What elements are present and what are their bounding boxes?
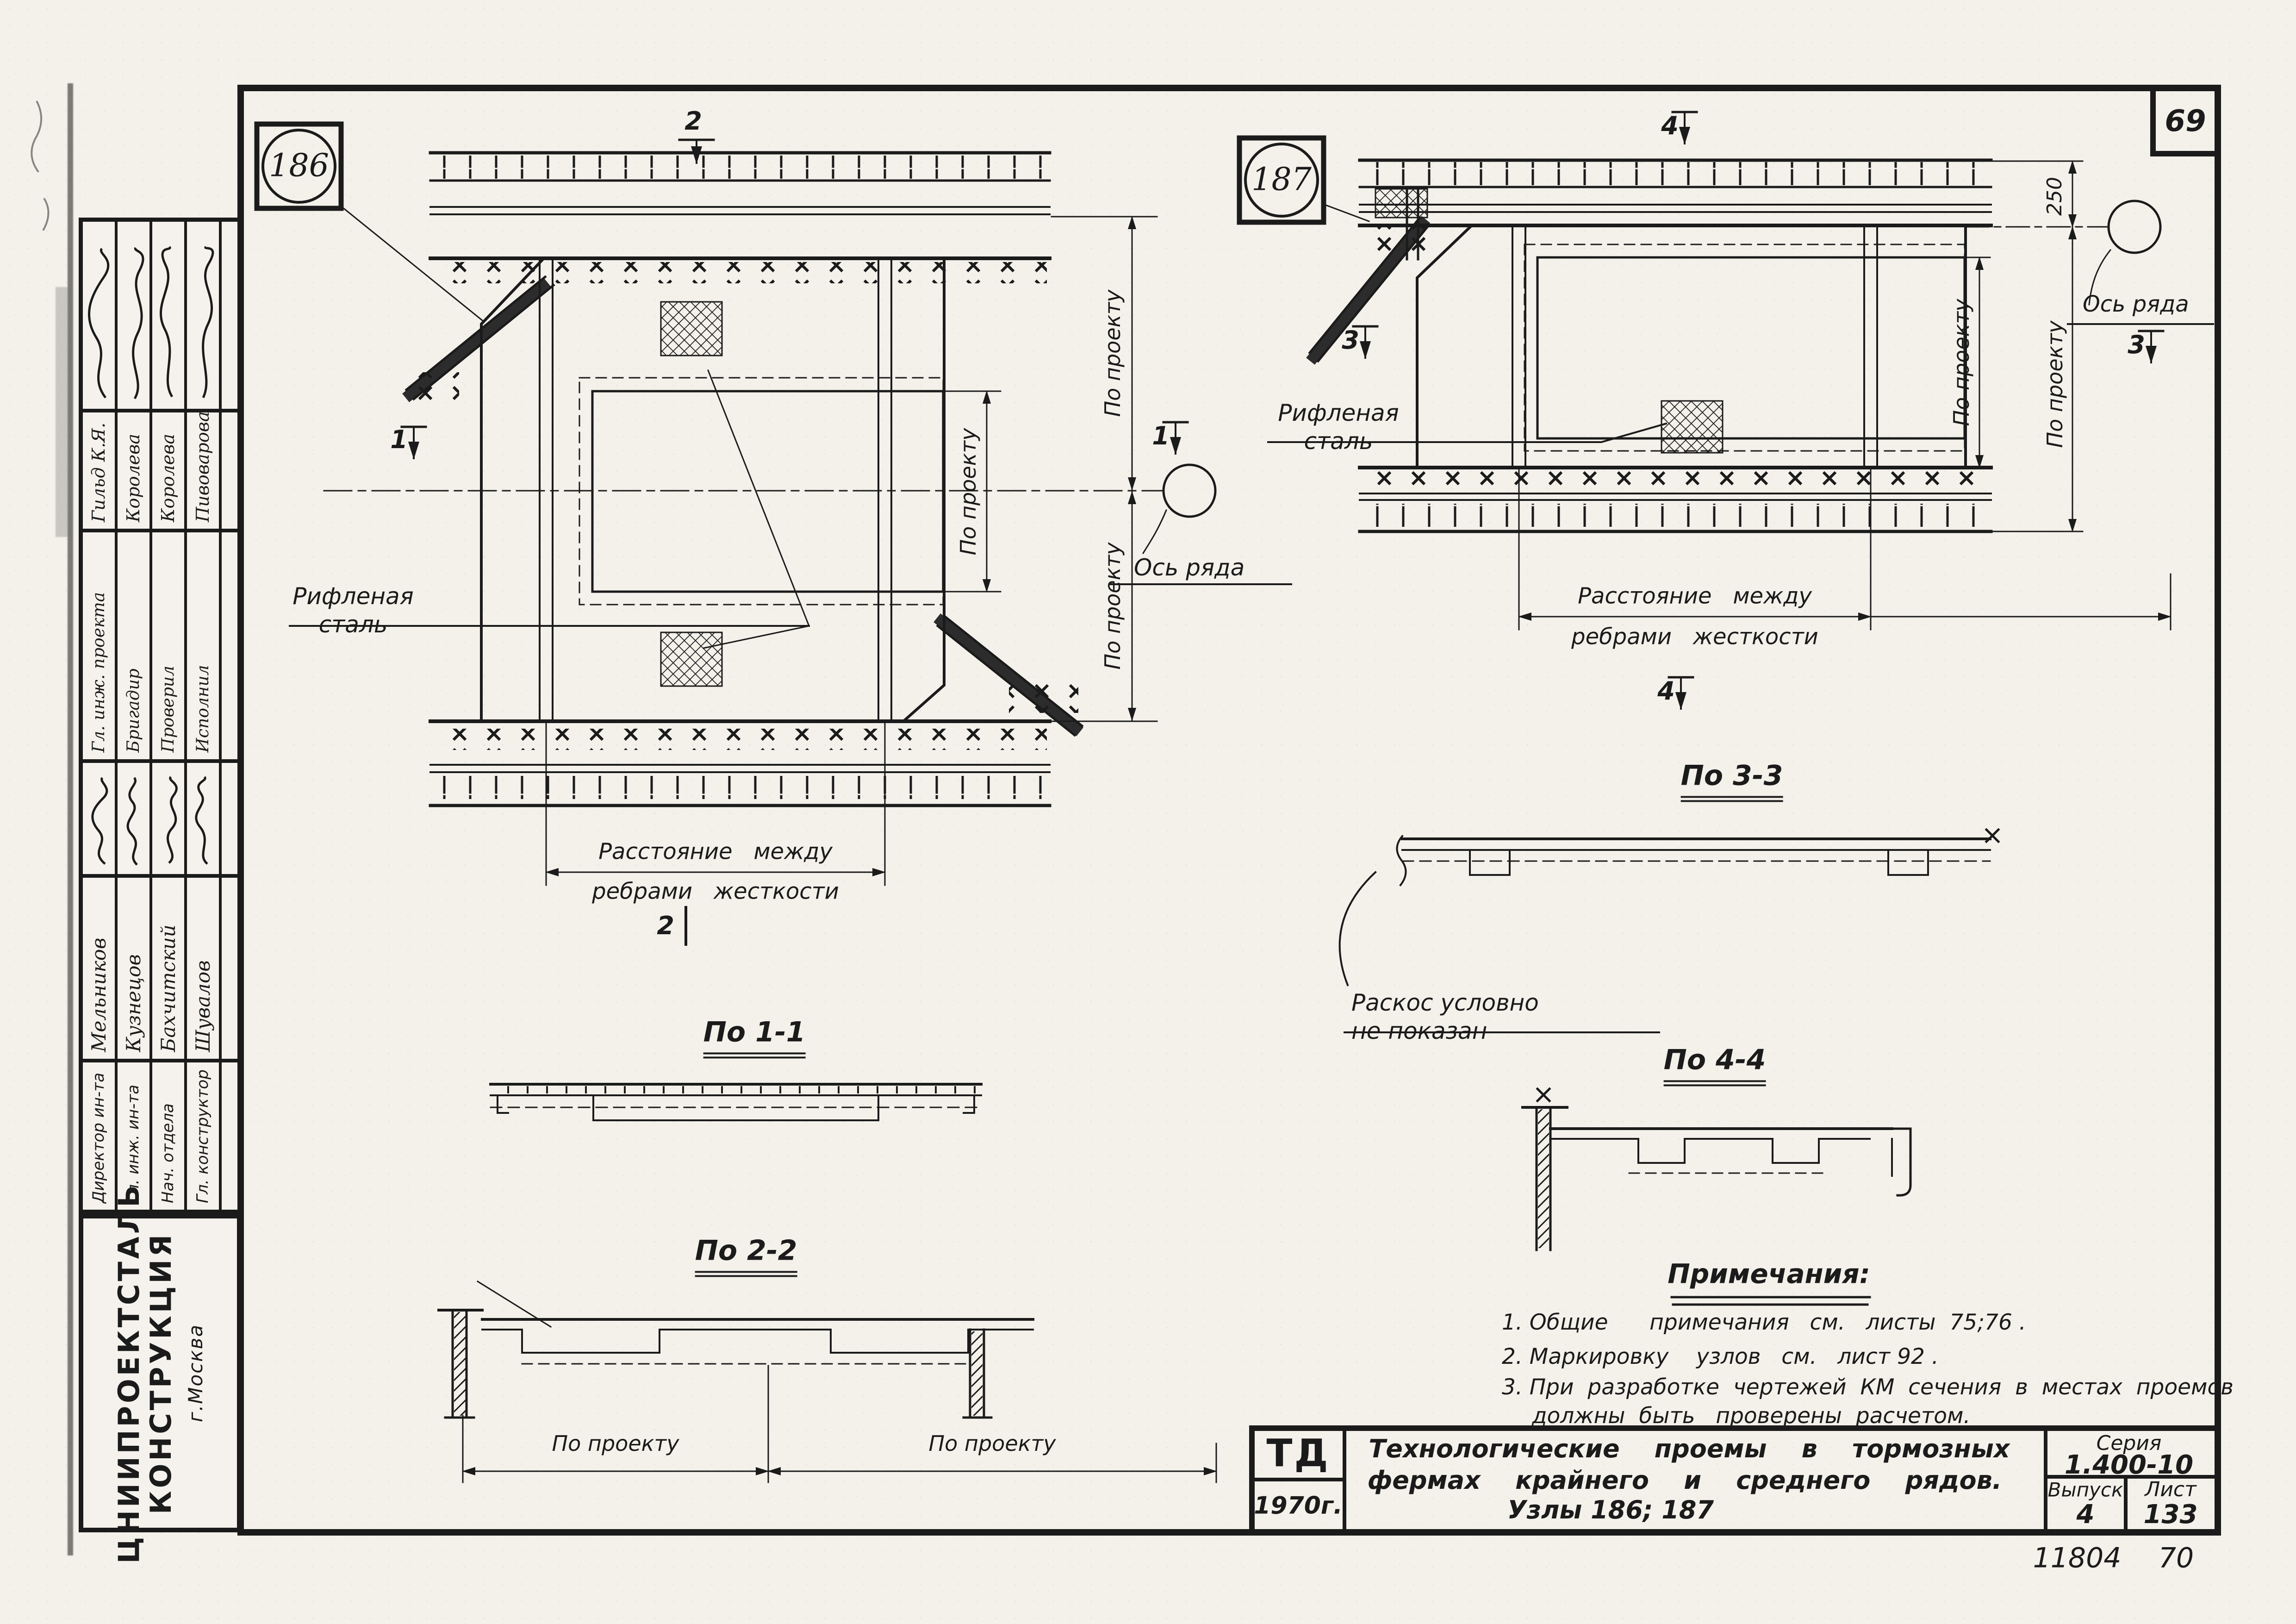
- notes-title: Примечания:: [1668, 1258, 1870, 1291]
- dim-by-project-right-inner: По проекту: [1948, 299, 1974, 426]
- notes-item-3b: должны быть проверены расчетом.: [1532, 1403, 1970, 1429]
- notes-item-1: 1. Общие примечания см. листы 75;76 .: [1502, 1309, 2026, 1336]
- archive-number: 11804: [2033, 1541, 2122, 1575]
- stamp-design-roles: Гл. инж. проекта Бригадир Проверил Испол…: [83, 532, 237, 763]
- brace-note-label: Раскос условно не показан: [1351, 989, 1629, 1045]
- cut-mark-4-bottom: 4: [1657, 676, 1675, 706]
- stamp-management-signatures: [83, 763, 237, 878]
- institute-city: г.Москва: [184, 1324, 207, 1422]
- section-title-2-2: По 2-2: [695, 1234, 797, 1277]
- stamp-design-names: Гильд К.Я. Королева Королева Пивоварова: [83, 412, 237, 532]
- node-number-187: 187: [1251, 161, 1312, 200]
- title-block-issue-value: 4: [2077, 1499, 2095, 1530]
- section-title-4-4: По 4-4: [1664, 1043, 1766, 1086]
- rib-distance-left-line2: ребрами жесткости: [592, 878, 839, 906]
- stamp-name: Бахчитский: [152, 878, 187, 1058]
- institute-name-box: ЦНИИПРОЕКТСТАЛЬ КОНСТРУКЦИЯ г.Москва: [79, 1214, 242, 1532]
- stamp-name: Гильд К.Я.: [83, 412, 118, 529]
- stamp-empty-cell: [222, 412, 242, 529]
- cut-mark-3-right: 3: [2128, 330, 2145, 360]
- riffled-steel-label-right: Рифленая сталь: [1269, 399, 1408, 456]
- stamp-role: Нач. отдела: [152, 1062, 187, 1210]
- section-title-1-1: По 1-1: [703, 1015, 806, 1058]
- dim-by-project-right-outer: По проекту: [2042, 321, 2068, 448]
- rib-distance-right-line1: Расстояние между: [1578, 583, 1812, 610]
- row-axis-label-right: Ось ряда: [2083, 291, 2189, 318]
- notes-item-2: 2. Маркировку узлов см. лист 92 .: [1502, 1343, 1939, 1370]
- dim-by-project-left-upper: По проекту: [1100, 290, 1126, 417]
- notes-item-3: 3. При разработке чертежей КМ сечения в …: [1502, 1374, 2234, 1400]
- stamp-empty-cell: [222, 1062, 242, 1210]
- stamp-design-signatures: [83, 222, 237, 412]
- dim-250: 250: [2042, 177, 2067, 216]
- stamp-name: Мельников: [83, 878, 118, 1058]
- stamp-name: Королева: [152, 412, 187, 529]
- dim-by-project-left-lower: По проекту: [1100, 543, 1126, 670]
- stamp-role: Гл. конструктор: [187, 1062, 222, 1210]
- signature-scribble-icon: [118, 222, 152, 409]
- cut-mark-1-left: 1: [390, 425, 408, 455]
- title-block-org-mark: ТД: [1267, 1430, 1330, 1477]
- archive-year: 70: [2159, 1541, 2194, 1575]
- cut-mark-4-top: 4: [1661, 111, 1679, 141]
- stamp-management-roles: Директор ин-та Гл. инж. ин-та Нач. отдел…: [83, 1062, 237, 1210]
- section-title-3-3: По 3-3: [1681, 759, 1783, 802]
- rib-distance-left-line1: Расстояние между: [598, 838, 833, 866]
- stamp-empty-cell: [222, 878, 242, 1058]
- stamp-management-names: Мельников Кузнецов Бахчитский Шувалов: [83, 878, 237, 1062]
- institute-name-line2: КОНСТРУКЦИЯ: [145, 1232, 177, 1514]
- title-block-line3: Узлы 186; 187: [1507, 1495, 1714, 1525]
- title-block-series-value: 1.400-10: [2065, 1449, 2193, 1481]
- stamp-empty-cell: [222, 532, 242, 759]
- signature-scribble-icon: [152, 222, 187, 409]
- cut-mark-2-top: 2: [684, 106, 702, 137]
- riffled-steel-label-left: Рифленая сталь: [286, 582, 420, 639]
- title-block-sheet-value: 133: [2144, 1499, 2198, 1530]
- node-number-186: 186: [269, 147, 329, 186]
- cut-mark-3-left: 3: [1342, 325, 1359, 356]
- signature-scribble-icon: [187, 222, 222, 409]
- stamp-signature-table: Директор ин-та Гл. инж. ин-та Нач. отдел…: [79, 218, 242, 1214]
- stamp-name: Шувалов: [187, 878, 222, 1058]
- title-block-line2: фермах крайнего и среднего рядов.: [1368, 1465, 2002, 1496]
- stamp-role: Гл. инж. проекта: [83, 532, 118, 759]
- dim-by-project-left-inner: По проекту: [955, 428, 981, 556]
- stamp-name: Пивоварова: [187, 412, 222, 529]
- stamp-name: Кузнецов: [118, 878, 152, 1058]
- signature-scribble-icon: [118, 763, 152, 874]
- signature-scribble-icon: [83, 763, 118, 874]
- title-block-sheet-label: Лист: [2145, 1477, 2196, 1502]
- drawing-sheet: 69 11804 70 186 187 2 2 1 1 3 3 4 4 По 1…: [0, 0, 2296, 1624]
- sheet-corner-number: 69: [2165, 103, 2206, 139]
- dim-by-project-sec22-left: По проекту: [552, 1430, 679, 1456]
- stamp-role: Исполнил: [187, 532, 222, 759]
- row-axis-label-left: Ось ряда: [1134, 554, 1244, 582]
- stamp-role: Проверил: [152, 532, 187, 759]
- title-block-issue-label: Выпуск: [2048, 1478, 2123, 1501]
- signature-scribble-icon: [187, 763, 222, 874]
- institute-name-line1: ЦНИИПРОЕКТСТАЛЬ: [113, 1182, 145, 1563]
- rib-distance-right-line2: ребрами жесткости: [1571, 624, 1818, 651]
- cut-mark-2-bottom: 2: [657, 911, 674, 941]
- stamp-role: Бригадир: [118, 532, 152, 759]
- title-block-line1: Технологические проемы в тормозных: [1369, 1434, 2010, 1464]
- dim-by-project-sec22-right: По проекту: [929, 1430, 1056, 1456]
- title-block-year: 1970г.: [1254, 1491, 1343, 1520]
- stamp-empty-cell: [222, 222, 242, 409]
- signature-scribble-icon: [152, 763, 187, 874]
- signature-scribble-icon: [83, 222, 118, 409]
- stamp-name: Королева: [118, 412, 152, 529]
- cut-mark-1-right: 1: [1152, 421, 1170, 451]
- stamp-empty-cell: [222, 763, 242, 874]
